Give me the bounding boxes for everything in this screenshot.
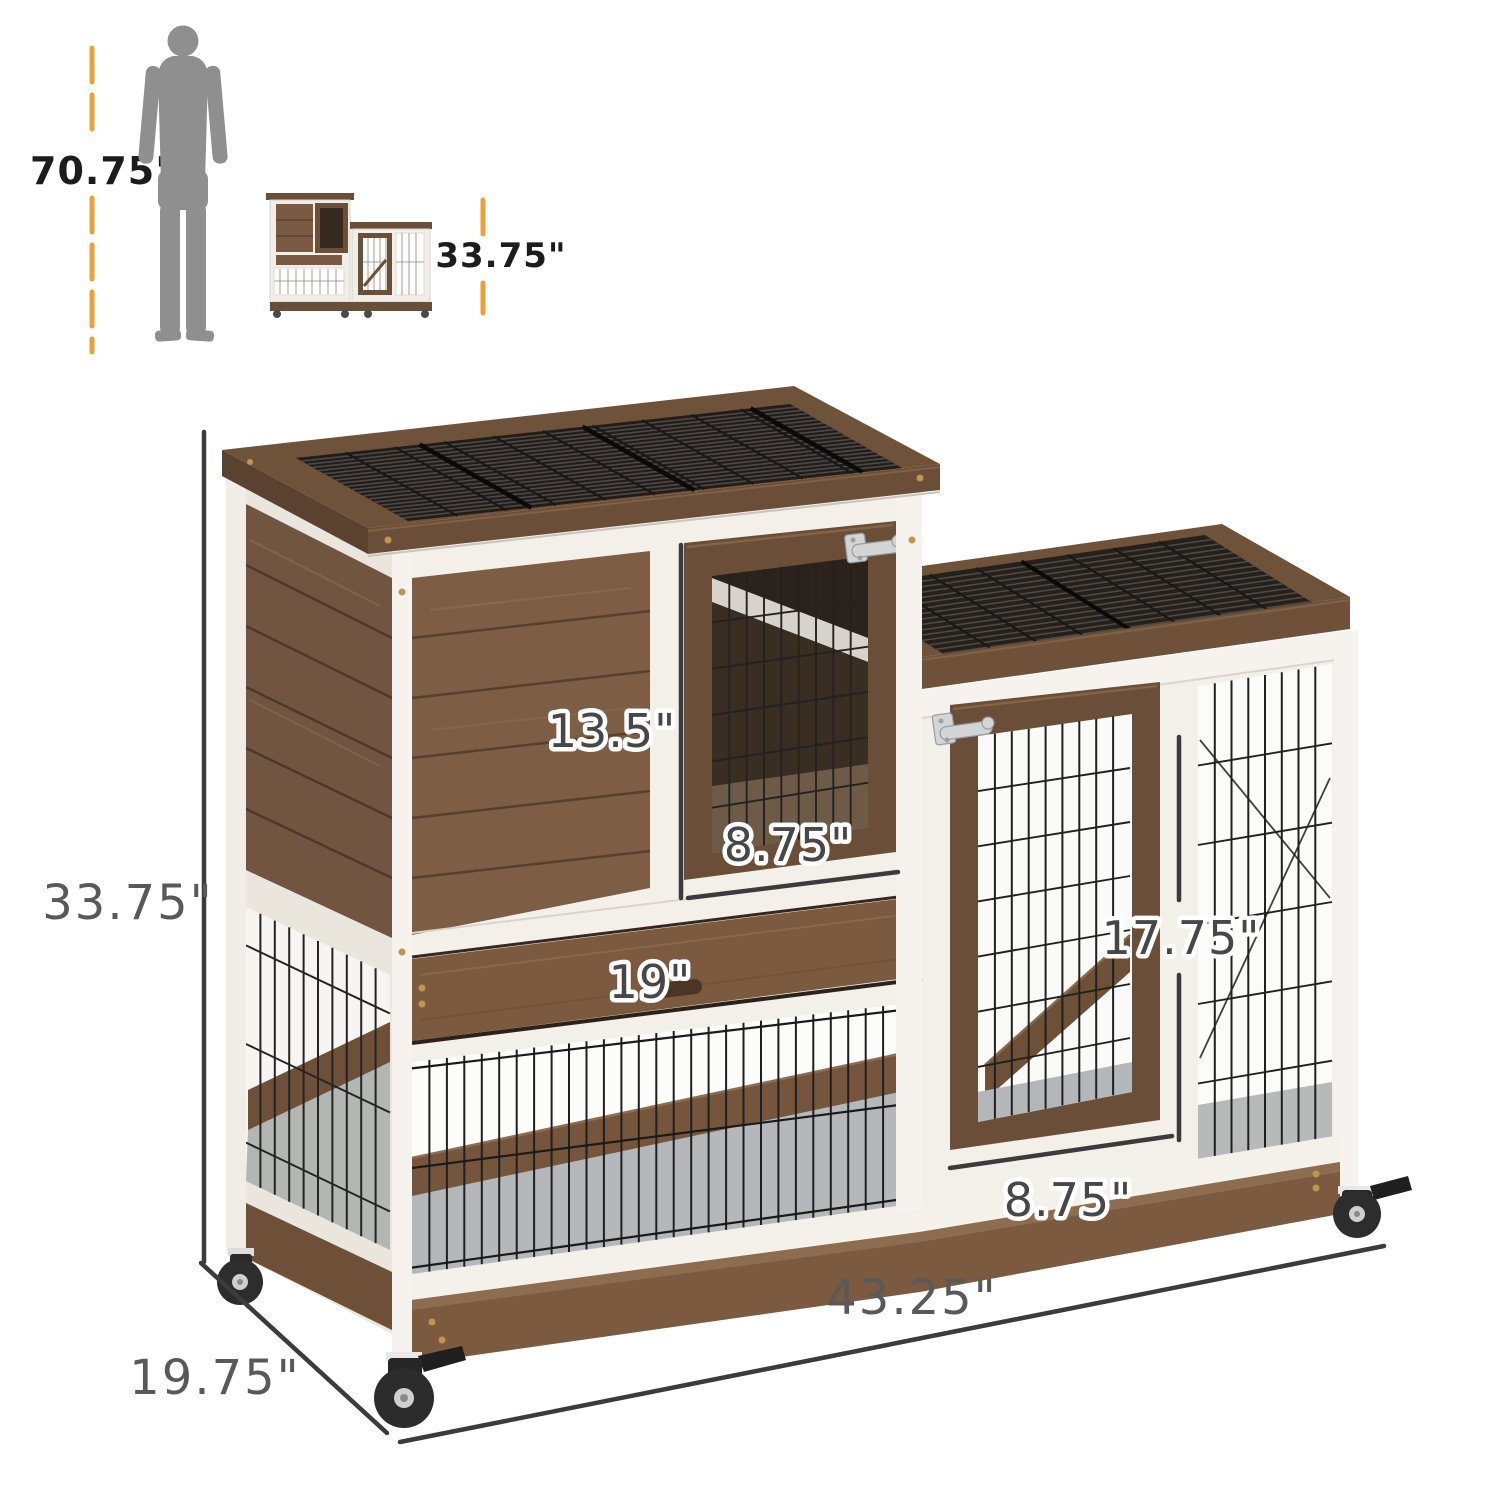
decor <box>274 268 344 295</box>
diagram-svg: 70.75" <box>0 0 1500 1500</box>
label-side-door-width: 8.75" <box>1004 1173 1133 1227</box>
decor <box>320 208 343 248</box>
decor <box>939 719 944 724</box>
decor <box>350 222 432 229</box>
decor <box>917 475 924 482</box>
decor <box>155 329 182 342</box>
decor <box>364 310 372 318</box>
decor <box>858 556 863 561</box>
decor <box>341 310 349 318</box>
decor <box>419 1001 426 1008</box>
label-overall-width: 43.25" <box>826 1270 998 1326</box>
product-thumbnail <box>266 193 432 318</box>
right-corner-post <box>1334 630 1358 1196</box>
label-overall-depth: 19.75" <box>129 1350 301 1406</box>
decor <box>160 202 180 336</box>
human-height-label: 70.75" <box>30 149 176 193</box>
thumbnail-height-label: 33.75" <box>435 236 566 276</box>
decor <box>246 504 392 938</box>
decor <box>276 255 342 265</box>
decor <box>421 310 429 318</box>
decor <box>186 329 215 342</box>
decor <box>400 1394 408 1402</box>
decor <box>273 310 281 318</box>
decor <box>205 65 228 164</box>
product-illustration <box>217 386 1412 1428</box>
decor <box>909 537 916 544</box>
decor <box>396 233 424 295</box>
decor <box>429 1319 436 1326</box>
rear-left-post <box>226 468 246 1254</box>
decor <box>945 738 950 743</box>
label-tray-width: 19" <box>609 955 692 1009</box>
decor <box>158 56 208 182</box>
product-dimension-image: 70.75" <box>0 0 1500 1500</box>
decor <box>270 302 432 311</box>
decor <box>266 193 354 200</box>
decor <box>1313 1171 1320 1178</box>
decor <box>439 1337 446 1344</box>
left-side-face <box>246 474 392 1334</box>
decor <box>982 717 994 729</box>
decor <box>1354 1211 1360 1217</box>
decor <box>1370 1176 1412 1200</box>
decor <box>276 204 313 252</box>
decor <box>851 538 856 543</box>
decor <box>399 589 406 596</box>
decor <box>385 537 392 544</box>
label-side-door-height: 17.75" <box>1102 911 1261 965</box>
decor <box>168 26 199 57</box>
size-comparison-figure: 70.75" <box>30 26 567 353</box>
decor <box>1313 1185 1320 1192</box>
label-upper-door-height: 13.5" <box>548 704 677 758</box>
decor <box>237 1279 243 1285</box>
label-upper-door-width: 8.75" <box>724 818 853 872</box>
decor <box>186 202 206 336</box>
caster-front-left <box>374 1346 466 1428</box>
decor <box>419 985 426 992</box>
decor <box>399 949 406 956</box>
decor <box>247 459 253 465</box>
label-overall-height: 33.75" <box>42 875 214 931</box>
tower-right-post <box>896 495 922 1213</box>
thumbnail-casters <box>273 310 429 318</box>
